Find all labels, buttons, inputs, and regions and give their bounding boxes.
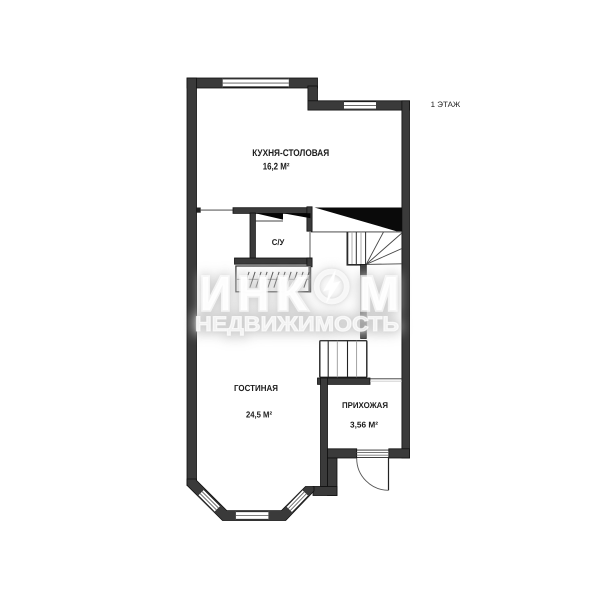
svg-text:24,5 М²: 24,5 М² (246, 409, 272, 419)
svg-text:С/У: С/У (272, 237, 285, 247)
svg-text:1 ЭТАЖ: 1 ЭТАЖ (431, 100, 461, 109)
svg-text:ГОСТИНАЯ: ГОСТИНАЯ (234, 383, 278, 393)
svg-text:3,56 М²: 3,56 М² (350, 419, 378, 429)
svg-text:НЕДВИЖИМОСТЬ: НЕДВИЖИМОСТЬ (195, 313, 399, 336)
svg-text:ПРИХОЖАЯ: ПРИХОЖАЯ (342, 400, 388, 410)
svg-text:16,2 М²: 16,2 М² (263, 161, 290, 172)
svg-text:КУХНЯ-СТОЛОВАЯ: КУХНЯ-СТОЛОВАЯ (252, 148, 329, 159)
